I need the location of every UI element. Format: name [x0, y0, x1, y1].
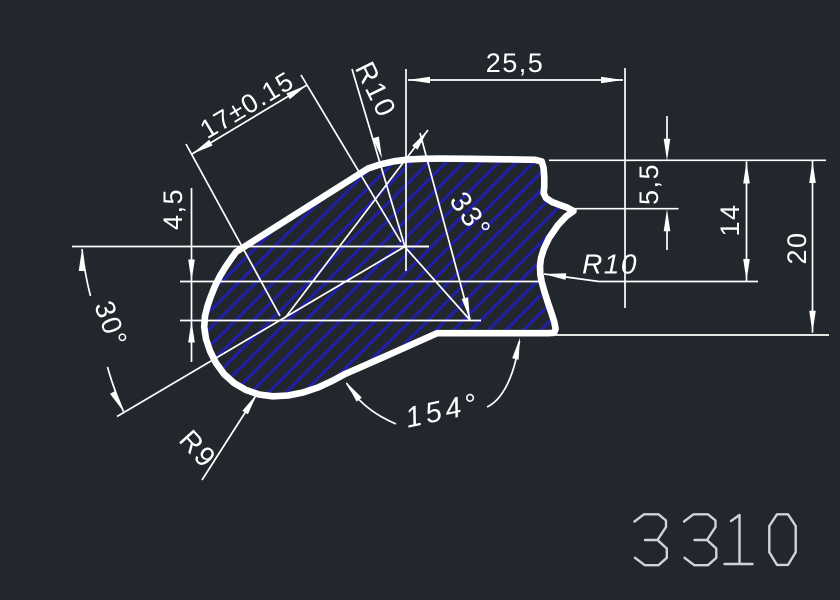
svg-text:R10: R10 [582, 249, 638, 280]
svg-text:14: 14 [715, 203, 745, 236]
svg-text:20: 20 [782, 231, 812, 264]
svg-text:5,5: 5,5 [634, 163, 664, 205]
svg-text:25,5: 25,5 [486, 48, 545, 78]
svg-text:4,5: 4,5 [158, 188, 188, 230]
